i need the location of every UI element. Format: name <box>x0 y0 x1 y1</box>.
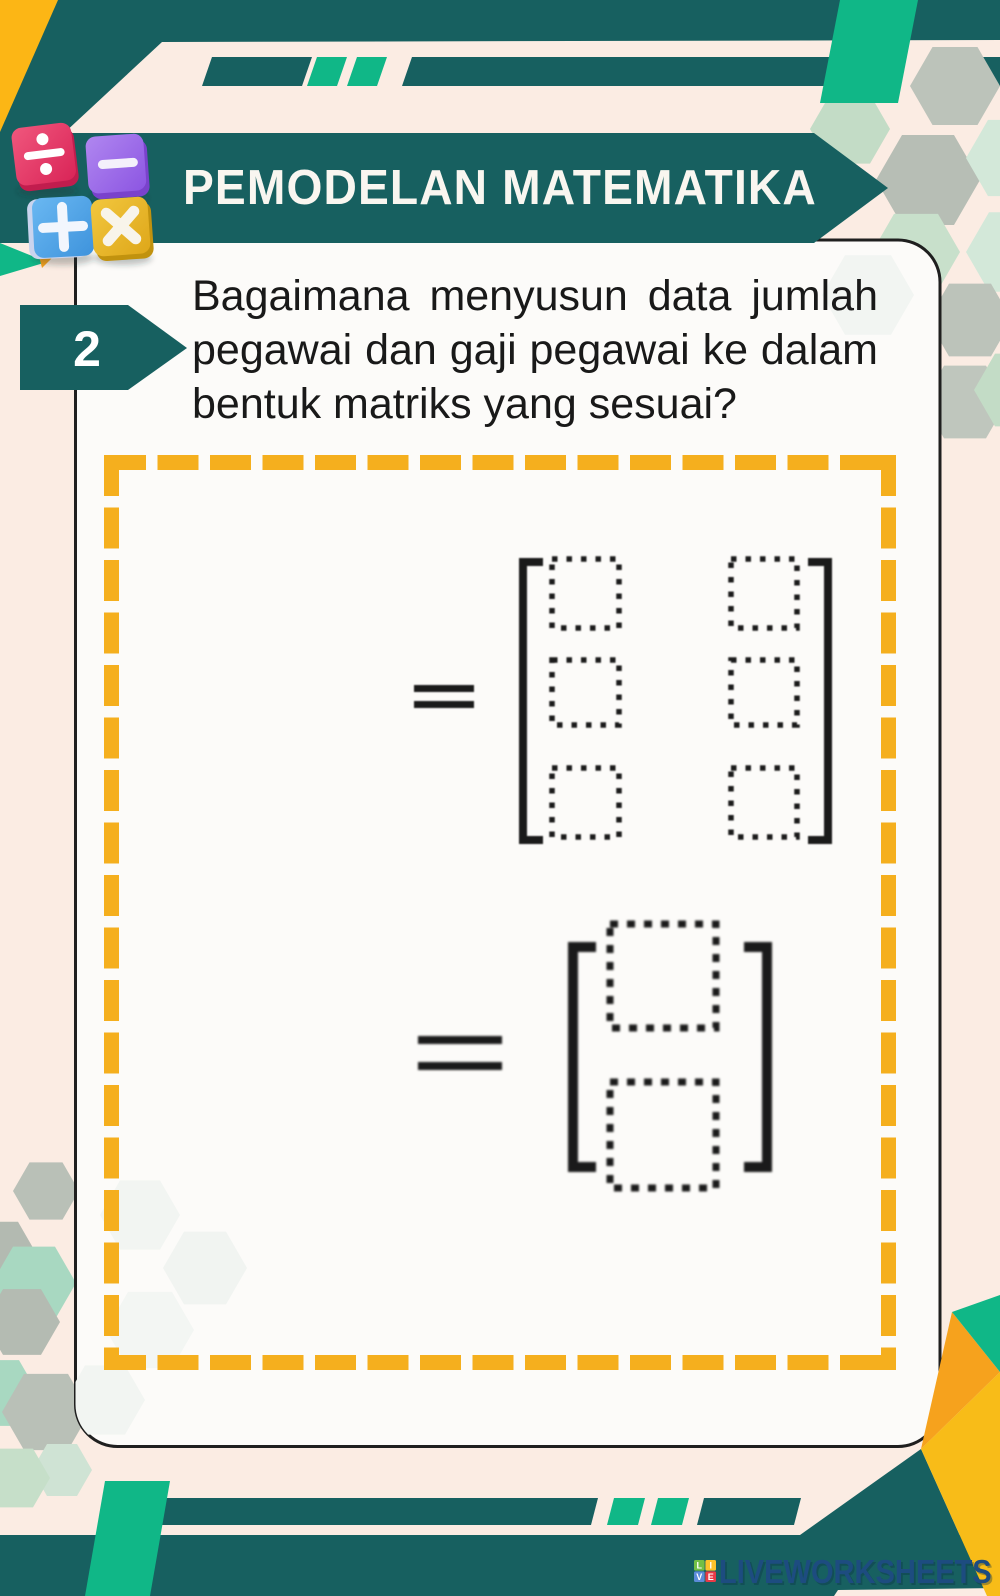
svg-text:I: I <box>709 1561 712 1571</box>
svg-text:E: E <box>708 1572 714 1582</box>
svg-text:V: V <box>696 1572 702 1582</box>
svg-text:L: L <box>697 1561 703 1571</box>
